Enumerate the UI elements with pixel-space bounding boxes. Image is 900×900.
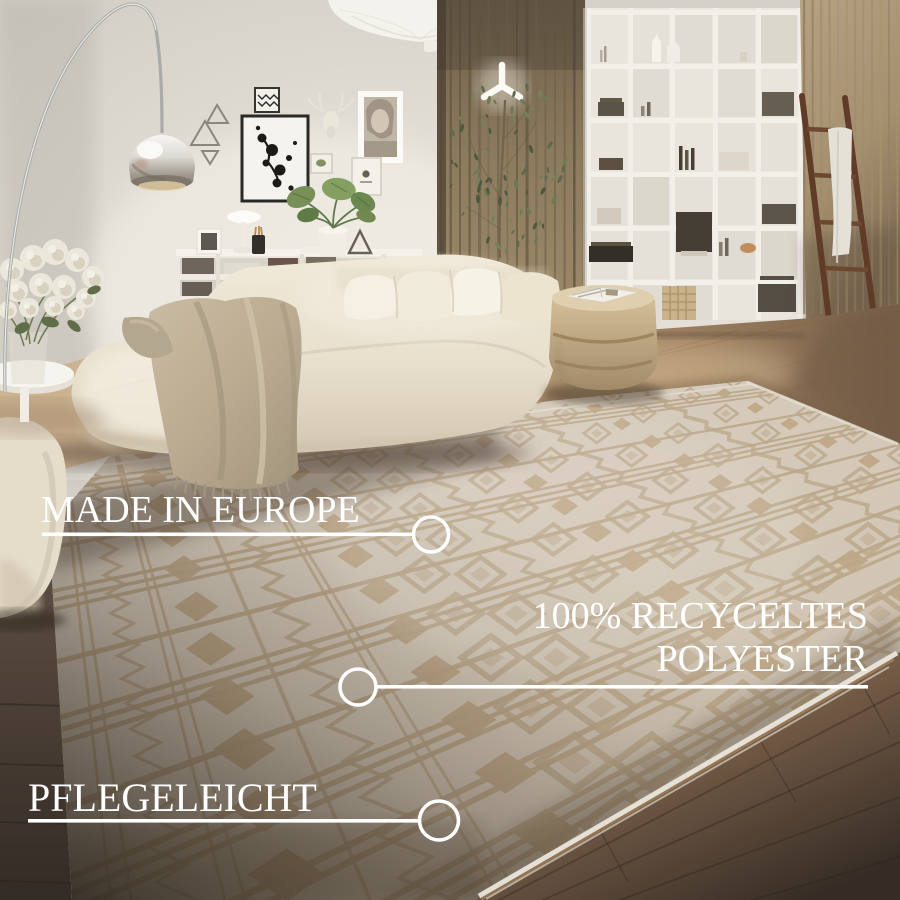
svg-text:MADE IN EUROPE: MADE IN EUROPE	[41, 489, 360, 531]
svg-text:100% RECYCELTES: 100% RECYCELTES	[533, 595, 868, 637]
svg-text:PFLEGELEICHT: PFLEGELEICHT	[28, 775, 317, 820]
svg-text:POLYESTER: POLYESTER	[656, 638, 868, 680]
